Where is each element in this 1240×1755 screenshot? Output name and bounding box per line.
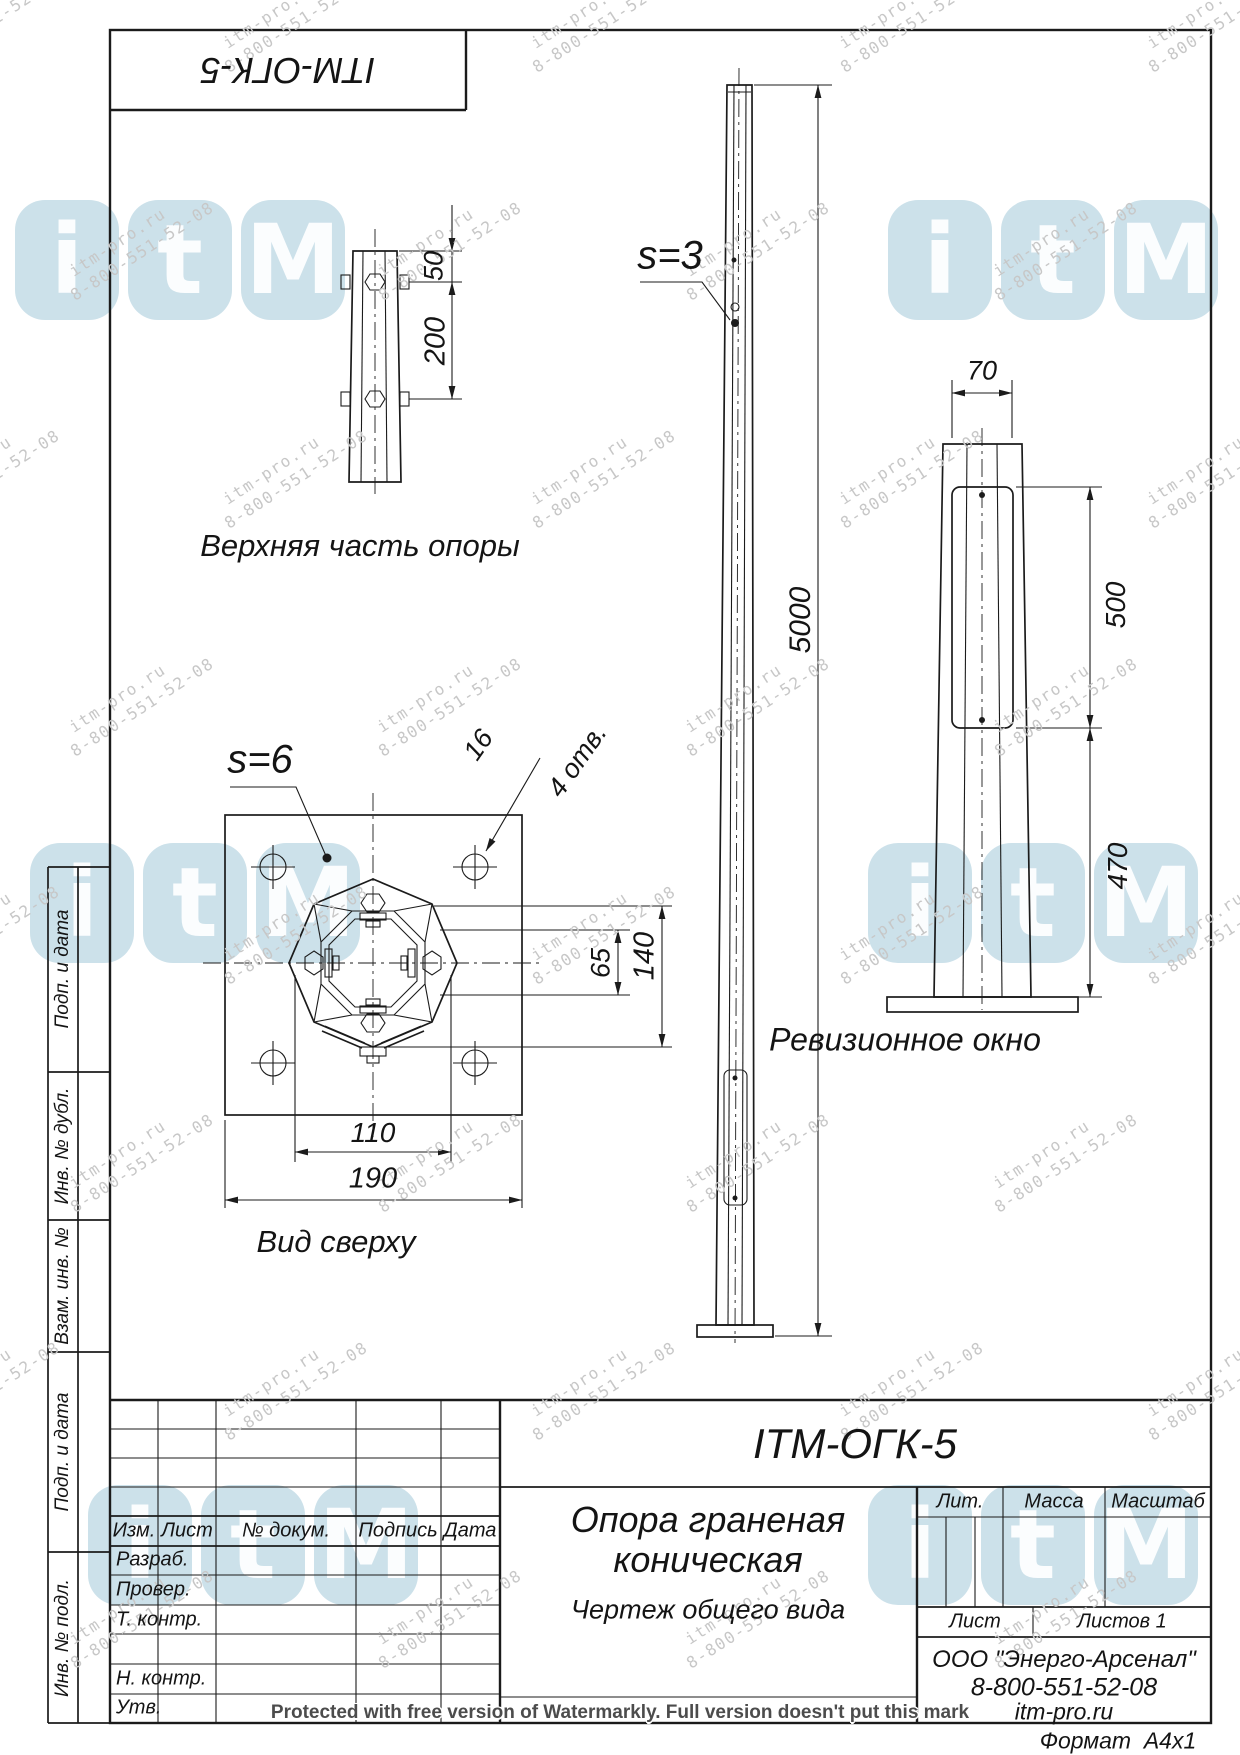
- title-name-line1: Опора граненая: [571, 1499, 846, 1541]
- company-name: ООО "Энерго-Арсенал": [932, 1646, 1196, 1674]
- side-label-podp-data-2: Подп. и дата: [52, 1393, 74, 1512]
- side-label-podp-data-1: Подп. и дата: [52, 910, 74, 1029]
- sheets-label: Листов 1: [1077, 1611, 1167, 1634]
- mass-label: Масса: [1024, 1491, 1083, 1514]
- corner-stamp-designation: ITM-ОГК-5: [201, 49, 376, 91]
- top-view-title: Вид сверху: [256, 1224, 415, 1260]
- callout-holes-dia: 16: [457, 667, 539, 766]
- callout-s3: s=3: [637, 234, 703, 279]
- col-sign: Подпись: [358, 1520, 437, 1543]
- dim-470: 470: [1102, 843, 1134, 890]
- row-nkontr: Н. контр.: [116, 1668, 206, 1691]
- row-utv: Утв.: [116, 1697, 161, 1720]
- title-designation: ITM-ОГК-5: [753, 1420, 957, 1468]
- dim-50: 50: [419, 251, 450, 281]
- dim-5000: 5000: [784, 587, 818, 654]
- top-detail-title: Верхняя часть опоры: [200, 528, 520, 564]
- col-date: Дата: [444, 1520, 497, 1543]
- sheet-label: Лист: [949, 1611, 1001, 1634]
- dim-500: 500: [1100, 582, 1132, 629]
- col-doc: № докум.: [242, 1520, 330, 1543]
- dim-140: 140: [629, 932, 662, 980]
- dim-200: 200: [420, 317, 453, 365]
- company-site: itm-pro.ru: [1015, 1699, 1113, 1726]
- scale-label: Масштаб: [1111, 1491, 1204, 1514]
- callout-s6: s=6: [227, 738, 293, 783]
- dim-110: 110: [351, 1117, 396, 1149]
- dim-65: 65: [586, 948, 617, 978]
- row-razrab: Разраб.: [116, 1549, 188, 1572]
- dim-70: 70: [967, 356, 997, 387]
- dim-190: 190: [349, 1163, 397, 1196]
- side-label-inv-dubl: Инв. № дубл.: [52, 1088, 74, 1205]
- watermarkly-protected-text: Protected with free version of Watermark…: [271, 1702, 969, 1724]
- row-tkontr: Т. контр.: [116, 1609, 202, 1632]
- side-label-vzam-inv: Взам. инв. №: [52, 1227, 74, 1345]
- format-label: Формат А4х1: [1040, 1728, 1197, 1755]
- revision-title: Ревизионное окно: [769, 1022, 1041, 1059]
- title-name-line2: коническая: [613, 1539, 802, 1581]
- title-doc-type: Чертеж общего вида: [571, 1595, 845, 1626]
- col-list: Лист: [161, 1520, 213, 1543]
- col-izm: Изм.: [113, 1520, 156, 1543]
- row-prover: Провер.: [116, 1579, 191, 1602]
- drawing-sheet: itMitMitMitMitMitM: [0, 0, 1240, 1755]
- callout-holes-count: 4 отв.: [541, 718, 612, 802]
- lit-label: Лит.: [937, 1491, 984, 1514]
- side-label-inv-podl: Инв. № подл.: [52, 1579, 74, 1697]
